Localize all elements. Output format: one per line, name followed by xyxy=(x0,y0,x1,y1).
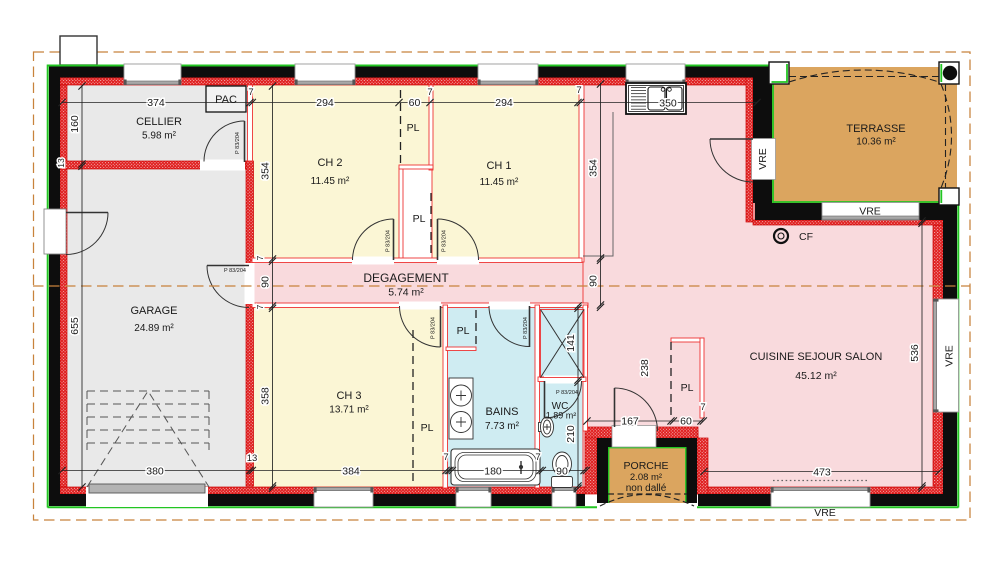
svg-text:24.89 m²: 24.89 m² xyxy=(134,323,174,334)
svg-text:350: 350 xyxy=(659,98,677,110)
svg-text:294: 294 xyxy=(495,97,513,109)
svg-text:PL: PL xyxy=(413,213,426,225)
svg-text:CH 1: CH 1 xyxy=(486,160,511,172)
svg-text:180: 180 xyxy=(484,466,502,478)
svg-text:45.12 m²: 45.12 m² xyxy=(795,370,837,382)
svg-text:1.89 m²: 1.89 m² xyxy=(546,411,577,421)
svg-text:90: 90 xyxy=(260,276,272,288)
svg-text:non dallé: non dallé xyxy=(626,483,667,494)
svg-text:P 83/204: P 83/204 xyxy=(235,132,241,154)
svg-text:655: 655 xyxy=(69,317,81,335)
svg-text:P 83/204: P 83/204 xyxy=(431,317,437,339)
svg-text:210: 210 xyxy=(565,425,577,443)
svg-text:TERRASSE: TERRASSE xyxy=(846,123,905,135)
svg-text:PL: PL xyxy=(681,382,694,394)
svg-text:P 83/204: P 83/204 xyxy=(386,230,392,252)
svg-text:358: 358 xyxy=(260,387,272,405)
svg-text:13: 13 xyxy=(247,453,258,464)
svg-text:PORCHE: PORCHE xyxy=(624,460,669,472)
svg-text:7: 7 xyxy=(427,87,432,98)
svg-text:294: 294 xyxy=(316,97,334,109)
svg-text:VRE: VRE xyxy=(757,148,769,170)
svg-text:90: 90 xyxy=(588,275,600,287)
svg-text:60: 60 xyxy=(680,416,692,428)
svg-text:167: 167 xyxy=(621,416,639,428)
svg-text:CELLIER: CELLIER xyxy=(136,116,182,128)
svg-text:60: 60 xyxy=(409,97,421,109)
svg-text:13.71 m²: 13.71 m² xyxy=(329,405,369,416)
svg-text:7: 7 xyxy=(443,452,448,463)
svg-text:13: 13 xyxy=(56,158,66,168)
svg-text:11.45 m²: 11.45 m² xyxy=(311,176,350,187)
svg-text:PL: PL xyxy=(407,122,420,134)
svg-text:PL: PL xyxy=(421,422,434,434)
svg-text:CF: CF xyxy=(799,231,813,243)
svg-text:7: 7 xyxy=(535,452,540,463)
svg-text:VRE: VRE xyxy=(944,345,956,367)
svg-text:7: 7 xyxy=(700,402,705,413)
svg-text:11.45 m²: 11.45 m² xyxy=(480,177,519,188)
svg-text:473: 473 xyxy=(813,467,831,479)
svg-text:CH 3: CH 3 xyxy=(336,390,361,402)
svg-text:7.73 m²: 7.73 m² xyxy=(485,421,520,432)
svg-text:P 83/204: P 83/204 xyxy=(224,268,246,274)
svg-text:354: 354 xyxy=(588,159,600,177)
svg-text:7: 7 xyxy=(255,255,265,260)
svg-text:P 83/204: P 83/204 xyxy=(523,317,529,339)
svg-text:7: 7 xyxy=(255,304,265,309)
svg-text:DEGAGEMENT: DEGAGEMENT xyxy=(363,271,449,285)
svg-text:5.74 m²: 5.74 m² xyxy=(388,287,424,299)
svg-text:141: 141 xyxy=(565,334,577,352)
svg-text:10.36 m²: 10.36 m² xyxy=(856,137,896,148)
svg-text:VRE: VRE xyxy=(814,507,836,519)
svg-text:7: 7 xyxy=(576,85,581,96)
svg-text:374: 374 xyxy=(147,97,165,109)
svg-text:GARAGE: GARAGE xyxy=(130,305,177,317)
svg-text:2.08 m²: 2.08 m² xyxy=(630,472,662,483)
svg-text:354: 354 xyxy=(260,162,272,180)
svg-text:536: 536 xyxy=(909,344,921,362)
svg-text:238: 238 xyxy=(639,359,651,377)
svg-text:380: 380 xyxy=(146,466,164,478)
svg-text:5.98 m²: 5.98 m² xyxy=(142,131,177,142)
svg-text:160: 160 xyxy=(69,115,81,133)
svg-text:384: 384 xyxy=(342,466,360,478)
svg-text:90: 90 xyxy=(556,466,568,478)
svg-text:PAC: PAC xyxy=(215,94,237,106)
svg-text:CUISINE SEJOUR SALON: CUISINE SEJOUR SALON xyxy=(750,351,883,363)
svg-text:7: 7 xyxy=(248,87,253,98)
svg-text:P 83/204: P 83/204 xyxy=(442,230,448,252)
svg-text:BAINS: BAINS xyxy=(485,406,518,418)
svg-text:P 83/204: P 83/204 xyxy=(556,390,578,396)
svg-text:CH 2: CH 2 xyxy=(317,157,342,169)
svg-text:VRE: VRE xyxy=(859,206,881,218)
svg-text:PL: PL xyxy=(457,325,470,337)
